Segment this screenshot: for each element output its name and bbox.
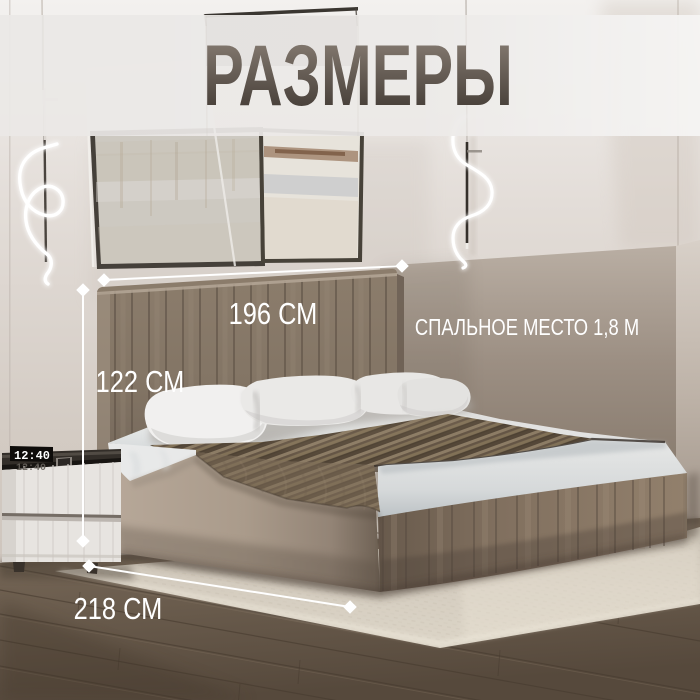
svg-text:12:40: 12:40 [16,463,46,474]
svg-text:12:40: 12:40 [14,449,50,463]
svg-text:218 СМ: 218 СМ [74,592,163,627]
svg-text:122 СМ: 122 СМ [96,365,185,400]
svg-text:РАЗМЕРЫ: РАЗМЕРЫ [203,27,513,124]
svg-text:196 СМ: 196 СМ [229,297,318,332]
svg-text:СПАЛЬНОЕ МЕСТО 1,8 М: СПАЛЬНОЕ МЕСТО 1,8 М [415,315,639,340]
